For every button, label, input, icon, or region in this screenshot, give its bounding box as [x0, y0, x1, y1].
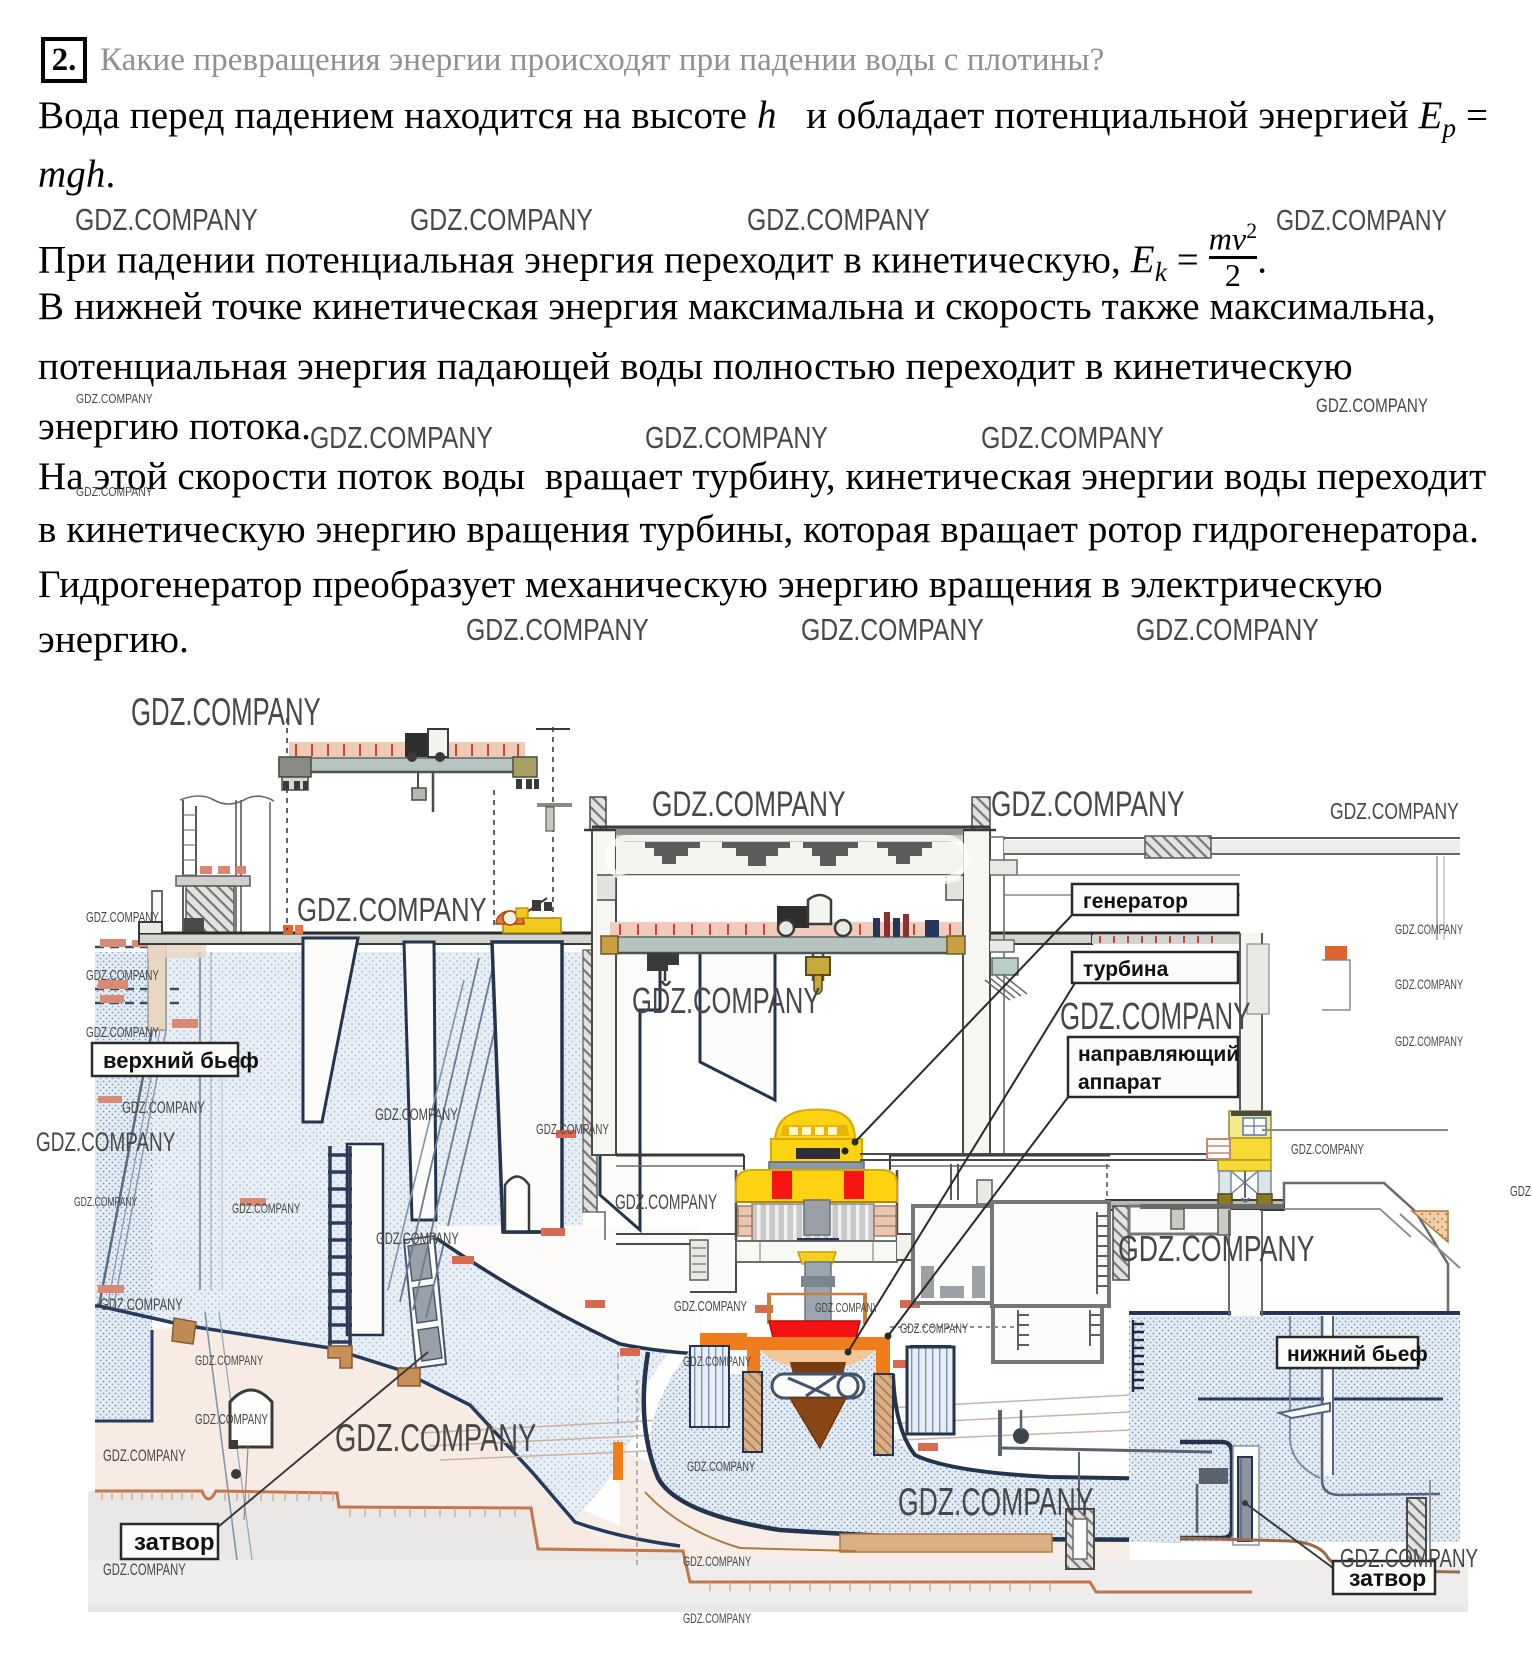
svg-text:нижний бьеф: нижний бьеф — [1287, 1343, 1428, 1366]
svg-text:турбина: турбина — [1083, 958, 1169, 981]
svg-text:направляющий: направляющий — [1078, 1043, 1239, 1066]
svg-text:аппарат: аппарат — [1078, 1071, 1162, 1094]
svg-text:генератор: генератор — [1083, 890, 1188, 913]
svg-text:затвор: затвор — [134, 1529, 214, 1556]
svg-text:верхний бьеф: верхний бьеф — [103, 1048, 259, 1073]
